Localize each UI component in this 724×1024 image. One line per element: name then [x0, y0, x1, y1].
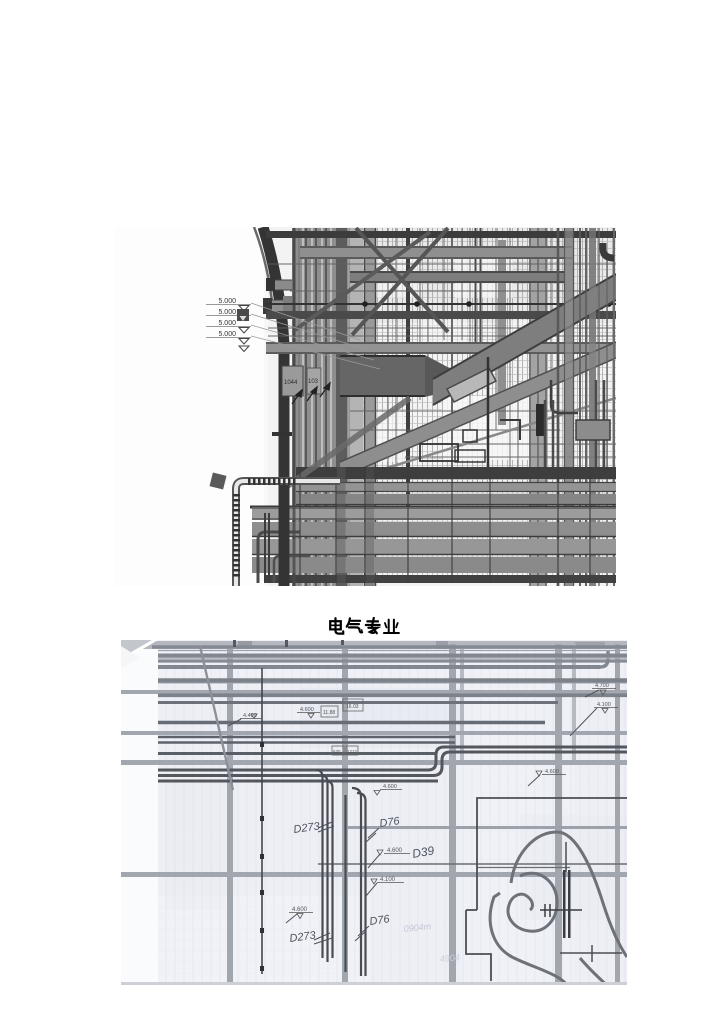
svg-text:1212: 1212	[347, 749, 358, 754]
svg-text:5.000: 5.000	[218, 298, 236, 305]
svg-text:5.000: 5.000	[218, 309, 236, 316]
svg-text:4904: 4904	[439, 952, 460, 964]
svg-text:630: 630	[333, 749, 341, 754]
svg-text:5.000: 5.000	[218, 331, 236, 338]
svg-text:5.000: 5.000	[218, 320, 236, 327]
svg-text:11.88: 11.88	[323, 710, 335, 716]
svg-text:16.03: 16.03	[346, 704, 359, 710]
svg-text:103: 103	[308, 379, 319, 385]
svg-text:1044: 1044	[284, 380, 298, 386]
